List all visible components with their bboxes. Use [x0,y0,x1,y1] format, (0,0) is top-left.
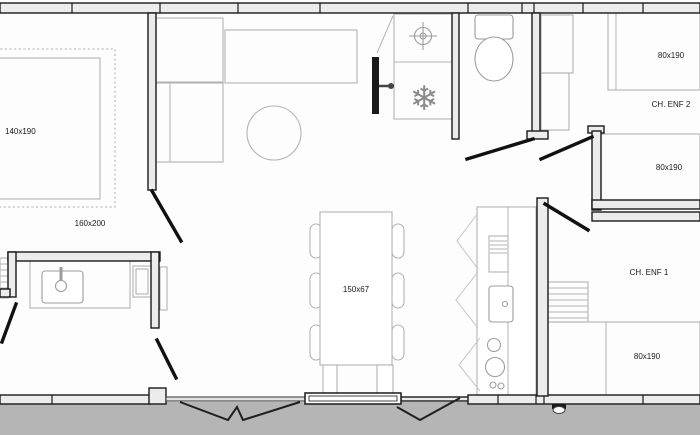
kids2-bed-top-size-label: 80x190 [658,51,685,60]
kids1-top-wall [592,212,700,221]
floorplan-canvas: ❄ [0,0,700,435]
kids2-room-name-label: CH. ENF 2 [652,100,691,109]
toilet-icon [475,15,513,81]
snowflake-icon: ❄ [410,79,439,119]
dining-table-size-label: 150x67 [343,285,370,294]
washbasin-icon [42,267,83,303]
kids2-bed-mid-size-label: 80x190 [656,163,683,172]
master-room-size-label: 160x200 [75,219,106,228]
door-stop-notch [552,404,566,414]
outdoor-ground [0,402,700,435]
kids1-left-wall [537,198,548,396]
bay-window [305,393,401,404]
master-bed-size-label: 140x190 [5,127,36,136]
master-bedroom-wall [148,13,156,190]
kids1-bed-size-label: 80x190 [634,352,661,361]
exterior-wall-top [0,3,700,13]
kitchen-sink-icon [489,286,513,322]
kids1-room-name-label: CH. ENF 1 [630,268,669,277]
